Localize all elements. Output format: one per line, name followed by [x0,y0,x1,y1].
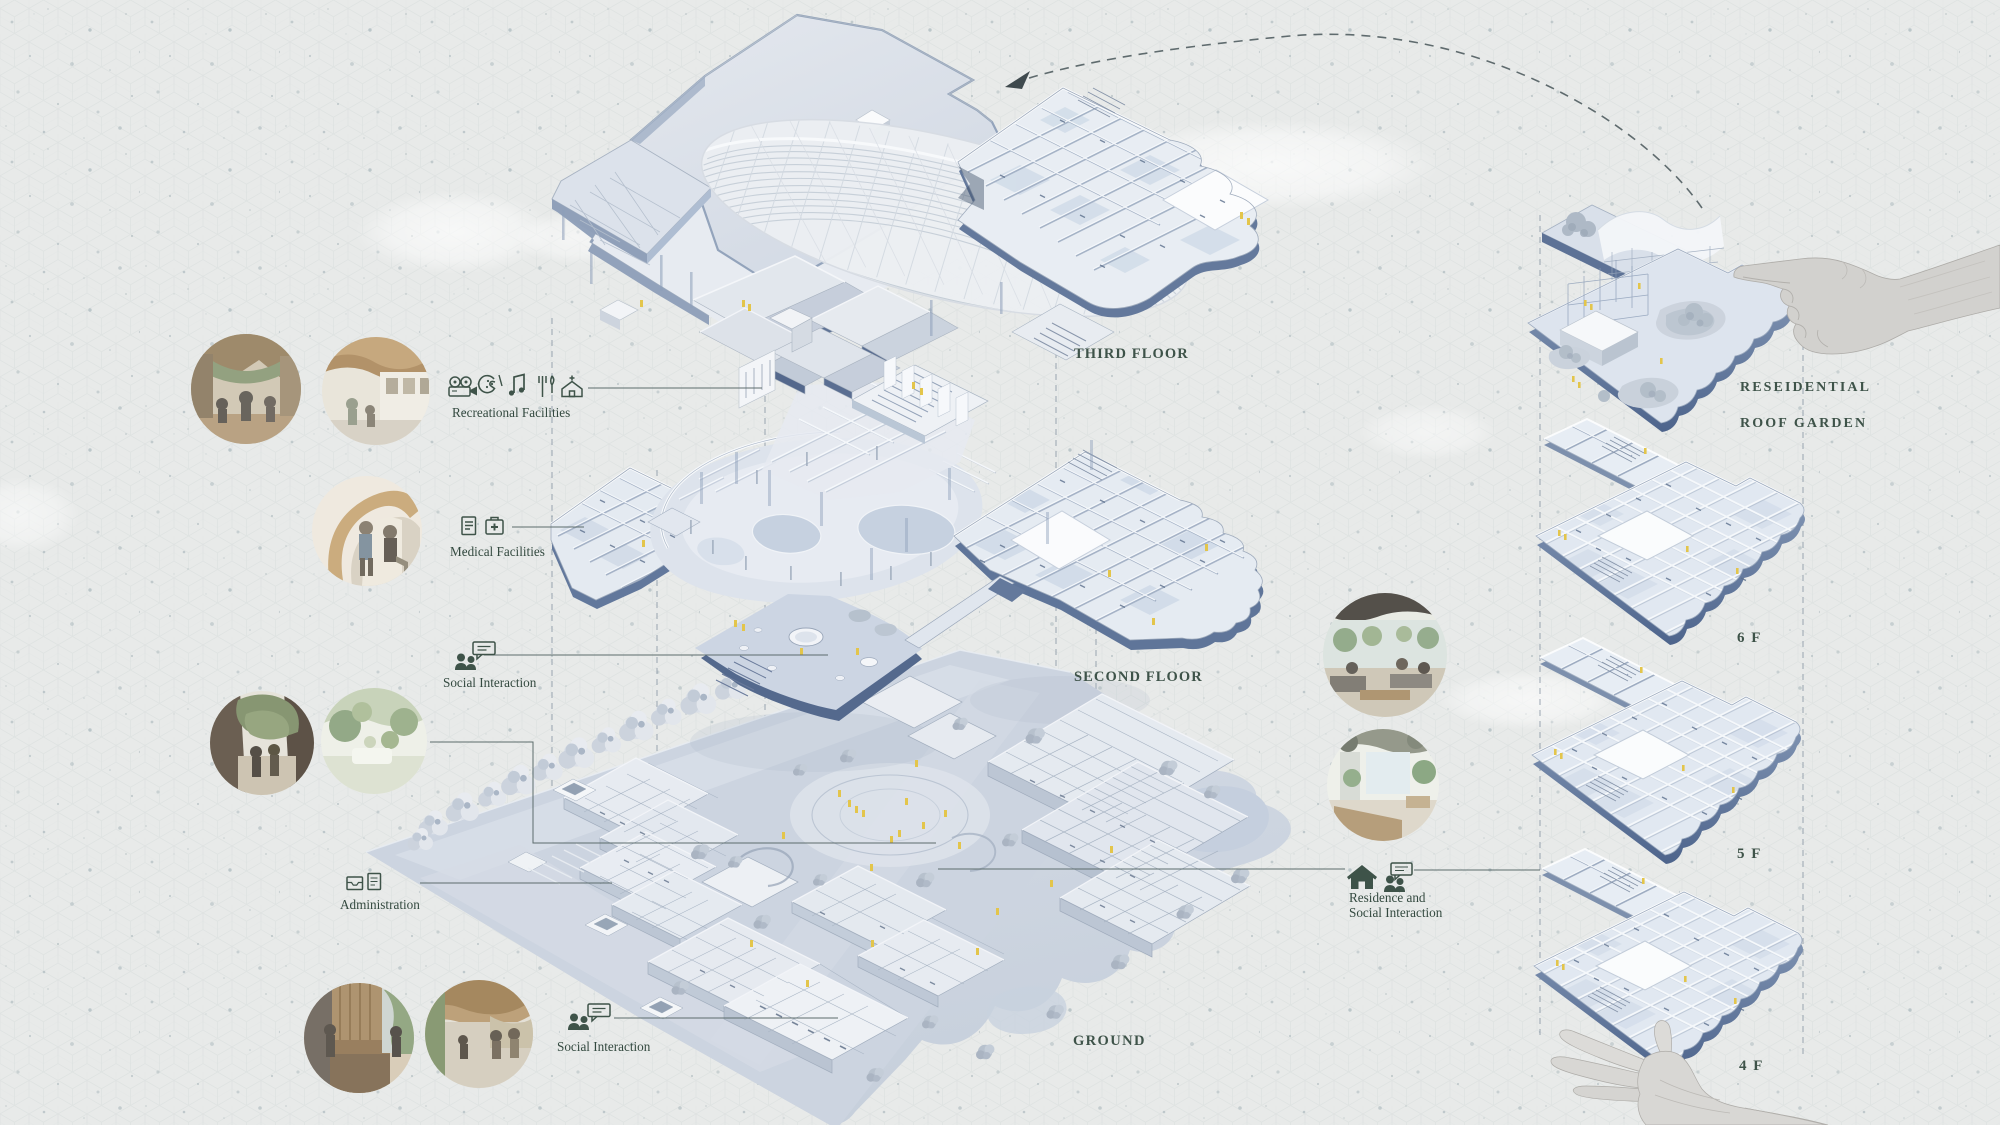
svg-text:4 F: 4 F [1739,1058,1764,1074]
svg-text:Administration: Administration [340,897,420,912]
svg-text:ROOF GARDEN: ROOF GARDEN [1740,416,1867,431]
svg-text:Social Interaction: Social Interaction [443,675,537,690]
svg-text:SECOND FLOOR: SECOND FLOOR [1074,669,1203,685]
svg-text:Social Interaction: Social Interaction [557,1039,651,1054]
svg-text:Social Interaction: Social Interaction [1349,905,1443,920]
svg-text:Medical Facilities: Medical Facilities [450,544,545,559]
svg-text:6 F: 6 F [1737,630,1762,646]
svg-text:GROUND: GROUND [1073,1033,1146,1049]
svg-text:Recreational Facilities: Recreational Facilities [452,405,570,420]
svg-text:5 F: 5 F [1737,846,1762,862]
svg-text:Residence and: Residence and [1349,890,1426,905]
svg-text:THIRD FLOOR: THIRD FLOOR [1074,346,1189,362]
svg-text:RESEIDENTIAL: RESEIDENTIAL [1740,380,1871,395]
